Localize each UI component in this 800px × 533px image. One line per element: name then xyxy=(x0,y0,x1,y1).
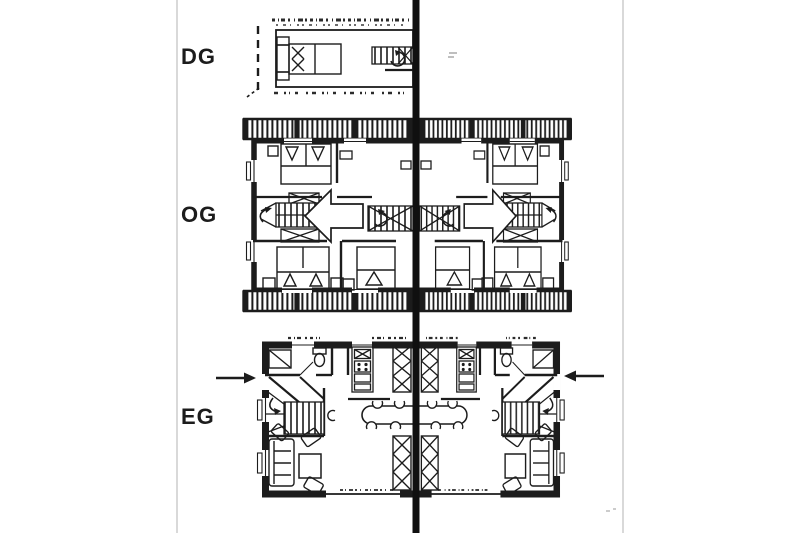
plan-eg-right-half xyxy=(417,338,564,497)
og-stairs-center xyxy=(368,206,413,231)
plan-eg-left-half xyxy=(258,338,417,497)
plan-og-left-half xyxy=(243,119,416,311)
eg-chimney-upper xyxy=(393,346,411,392)
scanned-plan-page: DG OG EG xyxy=(0,0,800,533)
plan-og-right-half xyxy=(417,119,572,311)
eg-hall-diagonal xyxy=(269,377,300,403)
scan-specks xyxy=(606,509,616,511)
dg-stairs xyxy=(372,47,413,70)
eg-coffee-table xyxy=(299,454,321,478)
og-bath xyxy=(253,151,372,197)
dg-bed xyxy=(277,37,341,80)
floor-plan-drawing xyxy=(0,0,800,533)
scan-artifact xyxy=(448,53,457,57)
eg-sofa xyxy=(269,439,294,486)
plan-dg xyxy=(247,20,457,97)
roof-edge-corner xyxy=(247,88,259,97)
eg-kitchen xyxy=(348,344,390,399)
og-bedrooms-bottom xyxy=(253,241,396,291)
entrance-arrow-right xyxy=(564,371,604,382)
balcony-railing-top xyxy=(243,119,413,139)
entrance-arrow-left xyxy=(216,373,256,384)
balcony-railing-bottom xyxy=(243,291,413,311)
og-bedroom-top xyxy=(268,141,337,184)
eg-wc xyxy=(265,344,332,403)
eg-chimney-lower xyxy=(393,436,411,490)
party-wall-divider xyxy=(413,0,420,533)
